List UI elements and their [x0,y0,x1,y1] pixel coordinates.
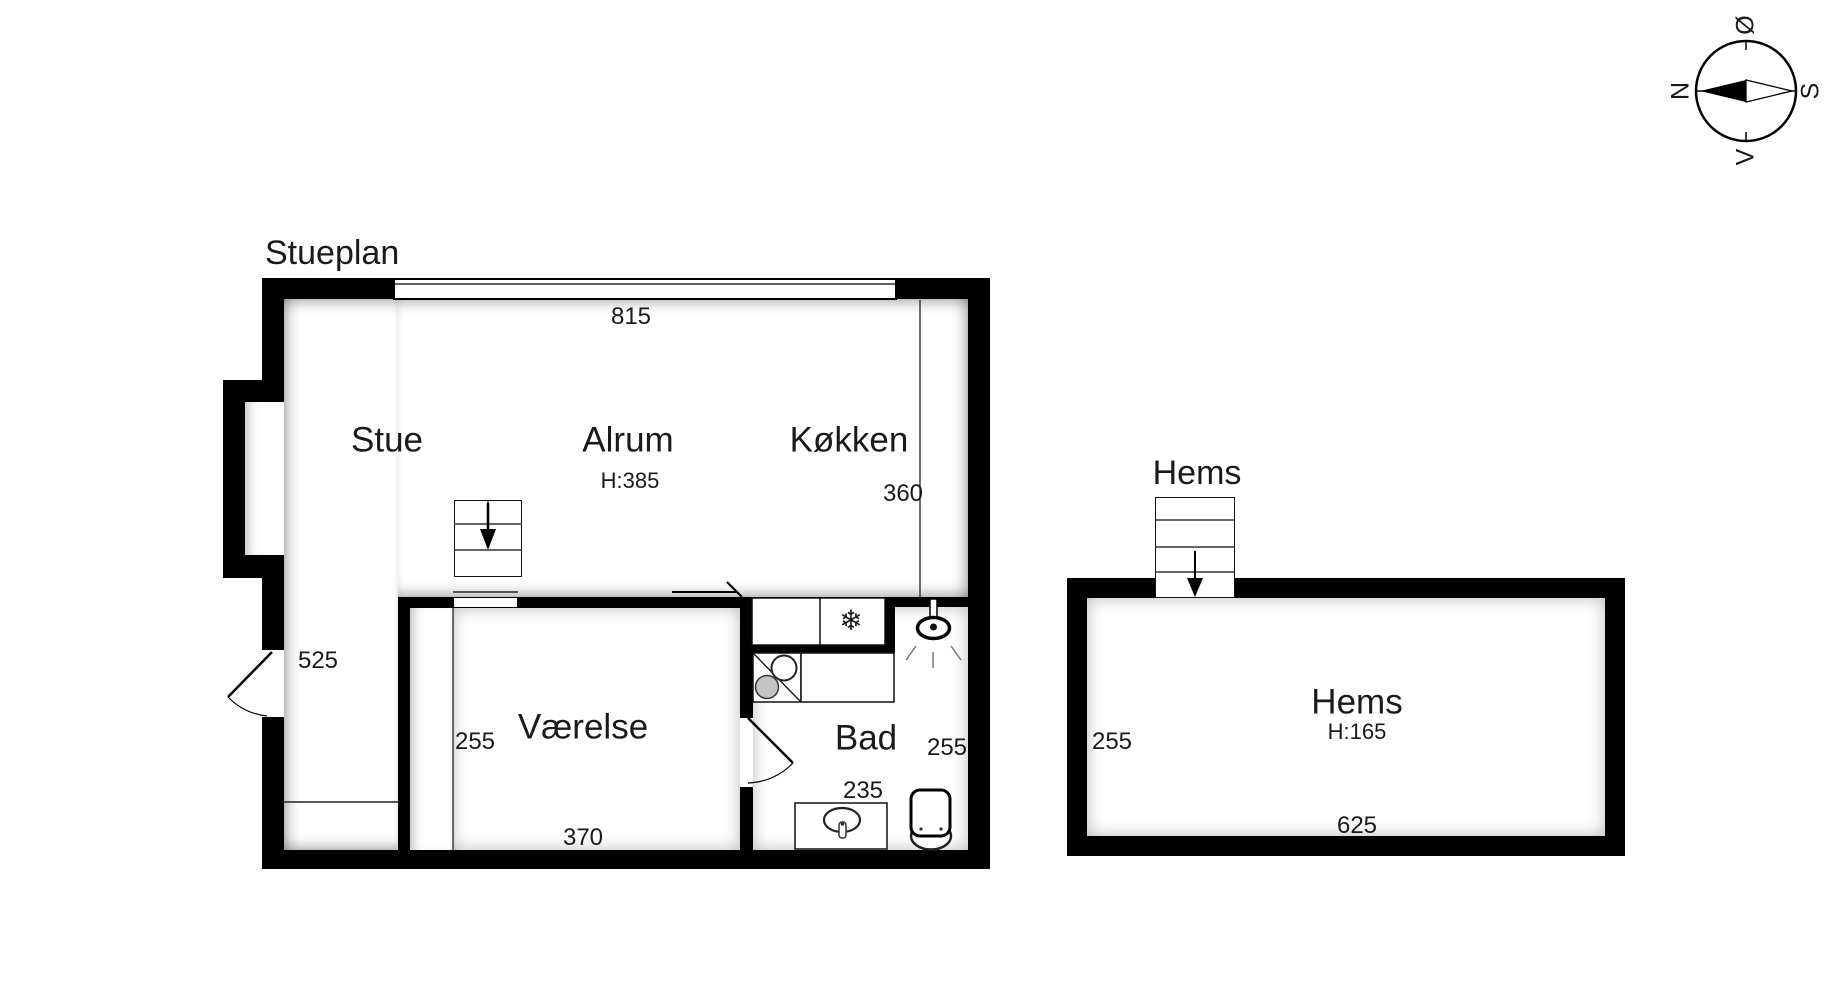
hems-ceiling-height: H:165 [1328,721,1387,743]
dim-bad-235: 235 [843,779,883,803]
compass-rose: N Ø S V [1671,16,1821,166]
vaerelse-top-wall-mid [518,597,672,608]
floorplan-title: Stueplan [265,236,399,270]
snowflake-icon: ❄ [839,607,862,635]
alrum-ceiling-height: H:385 [601,470,660,492]
compass-needle-south [1746,80,1792,102]
dim-vaerelse-370: 370 [563,826,603,850]
dim-window-815: 815 [611,305,651,329]
counter-end-wall [885,597,970,607]
closet-strip [410,608,453,850]
bad-label: Bad [835,721,897,756]
koekken-label: Køkken [790,423,909,458]
vaerelse-window [453,597,518,608]
compass-label-north: N [1667,82,1696,100]
dim-hems-625: 625 [1337,814,1377,838]
bad-door-opening [740,718,753,787]
dim-koekken-360: 360 [883,482,923,506]
stue-vaerelse-wall [398,597,410,850]
dim-bad-255: 255 [927,736,967,760]
dim-hems-255: 255 [1092,730,1132,754]
alrum-label: Alrum [582,423,673,458]
stue-label: Stue [351,423,423,458]
bay-nook [245,402,284,555]
loft-title: Hems [1153,456,1242,490]
alrum-stairs-box [454,500,522,577]
hems-label: Hems [1311,685,1402,720]
facade-window [393,278,897,300]
dim-vaerelse-255: 255 [455,730,495,754]
dim-stue-525: 525 [298,649,338,673]
vaerelse-label: Værelse [518,710,648,745]
compass-label-west: V [1732,149,1761,166]
compass-label-east: Ø [1732,15,1761,34]
koekken-bad-wall [750,643,895,653]
compass-label-south: S [1797,83,1826,100]
vaerelse-top-wall-left [398,597,453,608]
compass-needle-north [1700,80,1746,102]
floorplan-canvas: ❄ N Ø S V Stueplan Stue Alrum H:385 Køkk… [0,0,1828,1006]
entry-door-opening [262,650,284,717]
hems-stairs-box [1155,497,1235,598]
stue-floor [284,299,398,850]
